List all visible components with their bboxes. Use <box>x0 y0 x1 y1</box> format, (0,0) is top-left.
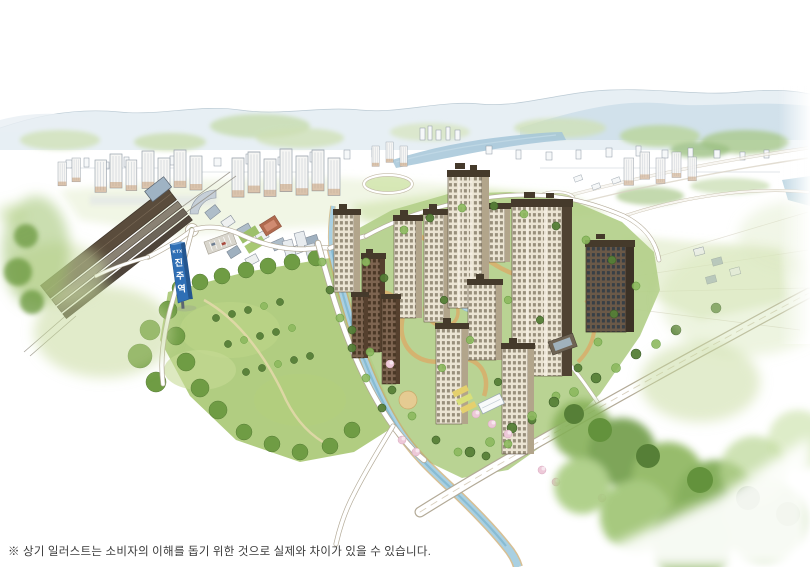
sign-text-char1: 진 <box>174 257 183 269</box>
apartment-tower <box>467 274 503 360</box>
sign-text-char2: 주 <box>176 271 185 282</box>
illustration-page: KTX 진 주 역 ※ 상기 일러스트는 소비자의 이해를 돕기 위한 것으로 … <box>0 0 810 567</box>
apartment-tower <box>423 204 451 322</box>
apartment-tower-dark <box>585 234 635 332</box>
sign-text-char3: 역 <box>177 282 186 294</box>
apartment-tower <box>488 203 511 262</box>
sign-text-ktx: KTX <box>172 249 182 255</box>
apartment-tower <box>333 204 361 292</box>
caption-disclaimer: ※ 상기 일러스트는 소비자의 이해를 돕기 위한 것으로 실제와 차이가 있을… <box>8 543 431 559</box>
apartment-tower <box>381 294 401 384</box>
complex-plaza <box>399 391 417 409</box>
watercolor-aerial-illustration: KTX 진 주 역 <box>0 0 810 567</box>
